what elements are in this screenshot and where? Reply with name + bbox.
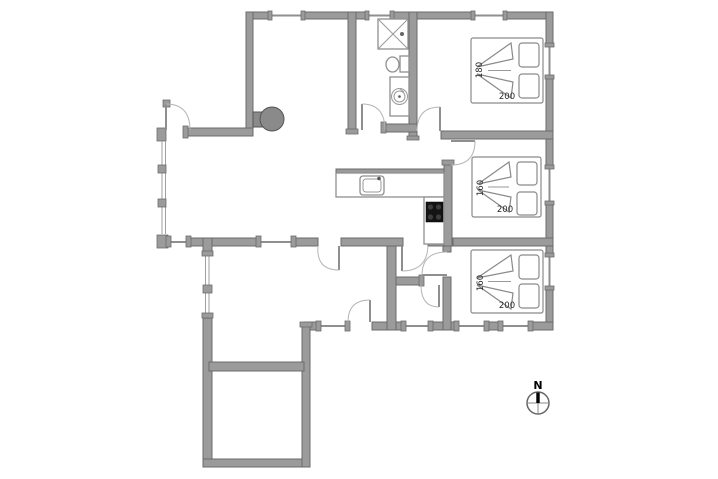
door-bedroom-top-right: [417, 107, 440, 131]
bed-length-label: 200: [497, 205, 513, 215]
bed-length-label: 200: [499, 301, 515, 311]
cooktop-icon: [426, 202, 443, 222]
kitchen-counter: [336, 173, 444, 197]
door-entrance: [163, 100, 190, 130]
bathroom-fixtures: [378, 19, 409, 116]
pillow: [517, 162, 537, 185]
pillow: [519, 74, 539, 98]
bed-top-right: 180 200: [471, 38, 543, 103]
toilet-icon: [386, 56, 409, 72]
bed-width-label: 160: [476, 275, 486, 291]
pillow: [517, 192, 537, 215]
floor-plan-page: 180 200 160 200 160 200 N: [0, 0, 718, 479]
pillow: [519, 255, 539, 279]
kitchen-sink-icon: [360, 176, 384, 195]
bed-width-label: 160: [476, 180, 486, 196]
washbasin-icon: [390, 77, 409, 116]
bed-bottom-right: 160 200: [471, 250, 543, 313]
pillow: [519, 43, 539, 67]
compass-rose: N: [527, 379, 549, 414]
door-annex: [318, 246, 339, 270]
kitchen: [336, 169, 444, 244]
bed-middle-right: 160 200: [472, 157, 541, 217]
door-bedroom-bottom-right: [422, 252, 447, 275]
wood-stove-icon: [253, 107, 284, 131]
compass-north-label: N: [533, 379, 542, 392]
bed-width-label: 180: [475, 62, 485, 78]
door-annex-exterior: [348, 300, 370, 322]
terrace-walls: [203, 318, 312, 467]
pillow: [519, 284, 539, 308]
floor-plan: 180 200 160 200 160 200 N: [0, 0, 718, 479]
door-closet: [421, 285, 439, 307]
compass-needle: [536, 393, 539, 404]
shower-icon: [378, 19, 408, 49]
door-rear-hallway: [402, 246, 428, 271]
bed-length-label: 200: [499, 92, 515, 102]
